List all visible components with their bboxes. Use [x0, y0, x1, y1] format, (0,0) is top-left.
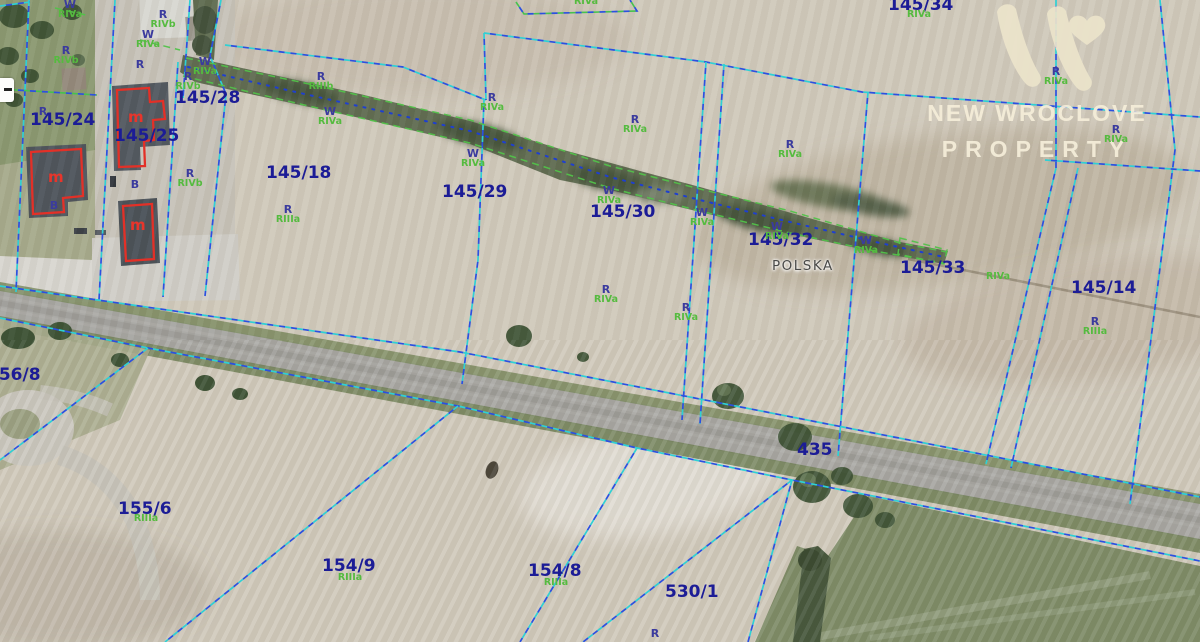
soil-use-mark: RRIIIb	[309, 72, 334, 92]
soil-use-mark: RRIVa	[480, 93, 504, 113]
soil-use-mark: WRIVa	[765, 222, 789, 242]
soil-use-mark: RIIIa	[544, 578, 568, 588]
soil-use-mark: RRIVb	[53, 46, 78, 66]
soil-use-mark: RRIIIa	[1083, 317, 1107, 337]
soil-use-mark: RRIVb	[175, 72, 200, 92]
parcel-label-145-33: 145/33	[900, 258, 965, 278]
parcel-label-145-14: 145/14	[1071, 278, 1136, 298]
parcel-label-530-1: 530/1	[665, 582, 719, 602]
soil-use-mark: RIIIa	[134, 514, 158, 524]
soil-use-mark: R	[136, 60, 144, 70]
soil-use-mark: RRIVa	[1044, 67, 1068, 87]
building-mark: m	[128, 108, 144, 126]
soil-use-mark: WRIVa	[854, 236, 878, 256]
road-number-label: 435	[797, 440, 833, 460]
soil-use-mark: B	[131, 180, 139, 190]
parcel-label-145-25: 145/25	[114, 126, 179, 146]
soil-use-mark: R	[651, 629, 659, 639]
soil-use-mark: WRIVa	[461, 149, 485, 169]
soil-use-mark: WRIVa	[690, 208, 714, 228]
soil-use-mark: RRIVa	[674, 303, 698, 323]
map-stage[interactable]: POLSKA 435 NEW WROCLOVE PROPERTY 145/241…	[0, 0, 1200, 642]
soil-use-mark: RRIVa	[778, 140, 802, 160]
soil-use-mark: RRIIIa	[276, 205, 300, 225]
soil-use-mark: RIVa	[986, 272, 1010, 282]
parcel-label-145-29: 145/29	[442, 182, 507, 202]
country-label: POLSKA	[772, 258, 834, 274]
parcel-label-156-8: 156/8	[0, 365, 41, 385]
soil-use-mark: RIVa	[574, 0, 598, 7]
soil-use-mark: R	[39, 107, 47, 117]
soil-use-mark: RIVa	[907, 10, 931, 20]
building-mark: m	[130, 216, 146, 234]
soil-use-mark: B	[50, 201, 58, 211]
soil-use-mark: RRIVa	[623, 115, 647, 135]
soil-use-mark: WRIVa	[318, 107, 342, 127]
soil-use-mark: WRIVa	[136, 30, 160, 50]
soil-use-mark: RRIVb	[177, 169, 202, 189]
soil-use-mark: WRIVa	[597, 186, 621, 206]
soil-use-mark: WRIVa	[58, 0, 82, 20]
soil-use-mark: RRIVa	[594, 285, 618, 305]
building-mark: m	[48, 168, 64, 186]
edge-marker	[0, 78, 14, 102]
soil-use-mark: RRIVb	[150, 10, 175, 30]
parcel-label-145-18: 145/18	[266, 163, 331, 183]
soil-use-mark: RRIVa	[1104, 125, 1128, 145]
soil-use-mark: RIIIa	[338, 573, 362, 583]
